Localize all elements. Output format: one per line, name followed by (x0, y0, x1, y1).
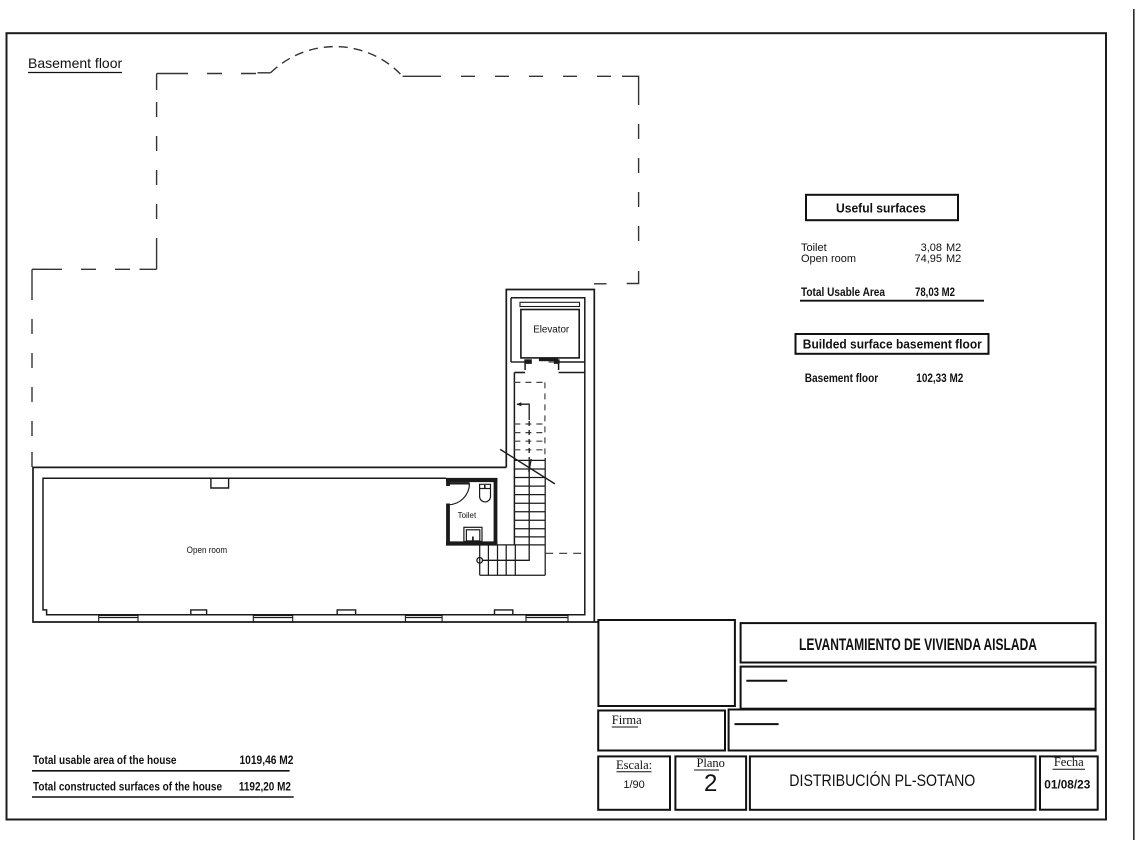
svg-text:DISTRIBUCIÓN PL-SOTANO: DISTRIBUCIÓN PL-SOTANO (789, 771, 975, 790)
svg-text:1/90: 1/90 (623, 779, 644, 791)
svg-text:102,33 M2: 102,33 M2 (916, 373, 963, 385)
svg-text:LEVANTAMIENTO DE VIVIENDA AISL: LEVANTAMIENTO DE VIVIENDA AISLADA (799, 636, 1037, 654)
svg-text:Elevator: Elevator (533, 324, 570, 335)
svg-text:Useful surfaces: Useful surfaces (836, 201, 926, 216)
svg-text:78,03 M2: 78,03 M2 (915, 287, 955, 299)
svg-text:2: 2 (704, 770, 717, 797)
svg-text:Open room: Open room (187, 545, 228, 555)
svg-text:Plano: Plano (696, 756, 724, 770)
svg-text:Fecha: Fecha (1054, 755, 1084, 769)
svg-text:1019,46 M2: 1019,46 M2 (240, 755, 294, 767)
svg-text:Builded surface basement floor: Builded surface basement floor (803, 337, 982, 352)
svg-text:Firma: Firma (612, 713, 642, 727)
svg-text:Basement floor: Basement floor (805, 373, 879, 385)
svg-text:01/08/23: 01/08/23 (1044, 780, 1090, 792)
svg-text:Total usable area of the house: Total usable area of the house (33, 755, 177, 767)
svg-text:Open room: Open room (801, 253, 856, 265)
svg-text:M2: M2 (946, 253, 961, 265)
svg-text:Total constructed surfaces of: Total constructed surfaces of the house (33, 781, 222, 793)
svg-text:Escala:: Escala: (616, 758, 652, 772)
svg-text:Basement floor: Basement floor (28, 55, 122, 71)
svg-text:Total Usable Area: Total Usable Area (801, 287, 886, 299)
svg-text:74,95: 74,95 (914, 253, 942, 265)
svg-text:1192,20 M2: 1192,20 M2 (239, 781, 291, 793)
svg-text:Toilet: Toilet (458, 510, 477, 520)
